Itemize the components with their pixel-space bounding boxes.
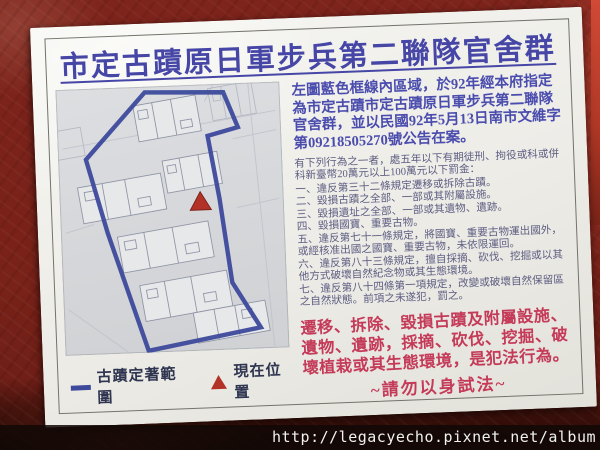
sign-inner-frame: 市定古蹟原日軍步兵第二聯隊官舍群 <box>44 18 583 414</box>
text-column: 左圖藍色框線內區域，於92年經本府指定為市定古蹟市定古蹟原日軍步兵第二聯隊官舍群… <box>291 71 574 400</box>
photo-of-heritage-sign: 市定古蹟原日軍步兵第二聯隊官舍群 <box>0 0 600 450</box>
photo-watermark: http://legacyecho.pixnet.net/album <box>0 425 600 450</box>
current-position-triangle-icon <box>190 191 212 210</box>
legend-position-label: 現在位置 <box>233 358 293 402</box>
penalty-section: 有下列行為之一者，處五年以下有期徒刑、拘役或科或併科新臺幣20萬元以上100萬元… <box>294 148 571 309</box>
heritage-notice-sign: 市定古蹟原日軍步兵第二聯隊官舍群 <box>30 7 597 428</box>
map-legend: 古蹟定著範圍 現在位置 <box>70 358 293 408</box>
sign-body: 古蹟定著範圍 現在位置 左圖藍色框線內區域，於92年經本府指定為市定古蹟市定古蹟… <box>55 71 574 409</box>
wall-bright-edge <box>591 0 600 225</box>
watermark-url: http://legacyecho.pixnet.net/album <box>272 428 596 446</box>
site-plan-map <box>55 81 289 355</box>
building-footprints <box>65 89 270 356</box>
legend-boundary-label: 古蹟定著範圍 <box>96 362 186 407</box>
boundary-line-icon <box>71 384 91 390</box>
map-column: 古蹟定著範圍 現在位置 <box>55 81 293 408</box>
position-triangle-icon <box>211 375 228 390</box>
designation-paragraph: 左圖藍色框線內區域，於92年經本府指定為市定古蹟市定古蹟原日軍步兵第二聯隊官舍群… <box>291 73 565 154</box>
